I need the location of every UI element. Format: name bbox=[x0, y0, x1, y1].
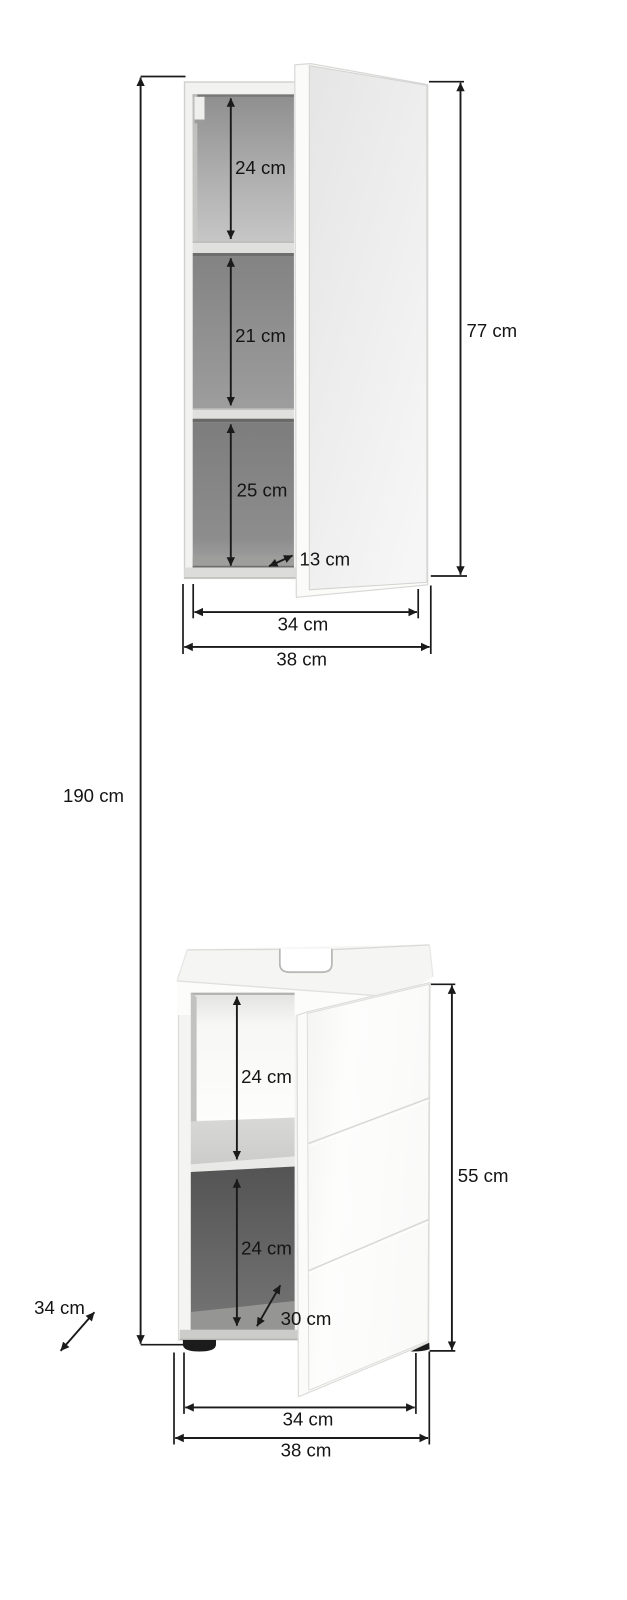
svg-text:24 cm: 24 cm bbox=[241, 1066, 292, 1087]
svg-text:55 cm: 55 cm bbox=[458, 1165, 509, 1186]
svg-text:190 cm: 190 cm bbox=[63, 785, 124, 806]
svg-text:25 cm: 25 cm bbox=[237, 479, 288, 500]
svg-text:24 cm: 24 cm bbox=[235, 157, 286, 178]
svg-text:34 cm: 34 cm bbox=[34, 1297, 85, 1318]
svg-text:34 cm: 34 cm bbox=[283, 1409, 334, 1430]
svg-text:24 cm: 24 cm bbox=[241, 1238, 292, 1259]
svg-text:77 cm: 77 cm bbox=[467, 320, 518, 341]
svg-text:38 cm: 38 cm bbox=[276, 649, 327, 670]
svg-text:13 cm: 13 cm bbox=[300, 549, 351, 570]
svg-text:21 cm: 21 cm bbox=[235, 325, 286, 346]
svg-text:34 cm: 34 cm bbox=[278, 614, 329, 635]
svg-text:38 cm: 38 cm bbox=[281, 1440, 332, 1461]
svg-text:30 cm: 30 cm bbox=[281, 1308, 332, 1329]
